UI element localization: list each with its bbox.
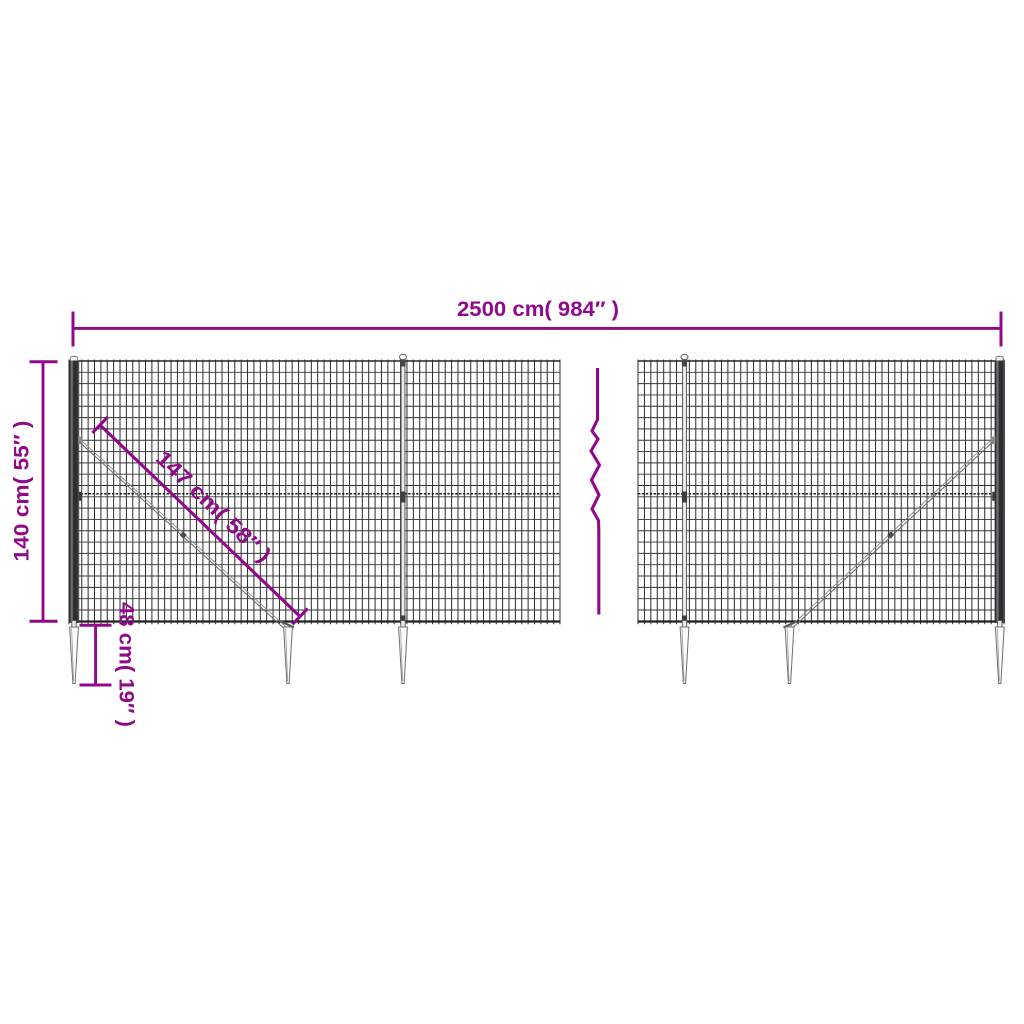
svg-text:2500 cm( 984″ ): 2500 cm( 984″ ) (457, 297, 619, 321)
svg-text:147 cm( 58″ ): 147 cm( 58″ ) (151, 446, 276, 567)
svg-text:48 cm( 19″ ): 48 cm( 19″ ) (115, 602, 139, 727)
svg-text:140 cm( 55″ ): 140 cm( 55″ ) (10, 421, 34, 562)
